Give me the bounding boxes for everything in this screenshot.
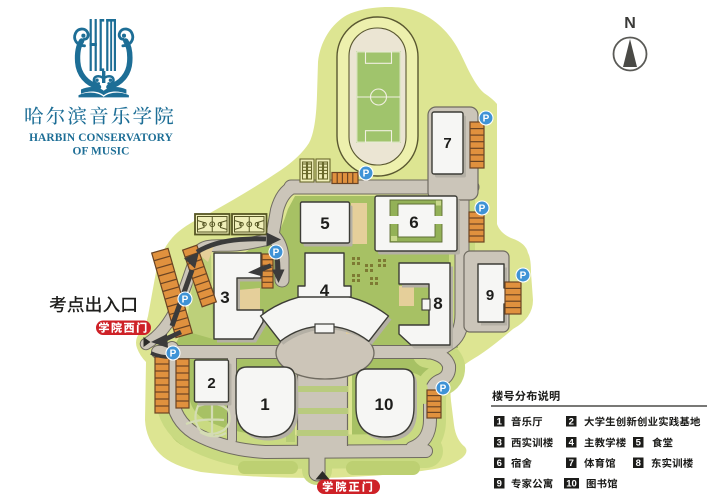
svg-text:5: 5 <box>320 214 329 233</box>
svg-text:HARBIN CONSERVATORY: HARBIN CONSERVATORY <box>29 132 173 144</box>
svg-text:9: 9 <box>486 287 494 304</box>
svg-text:P: P <box>273 247 280 258</box>
svg-text:6: 6 <box>497 458 502 469</box>
svg-text:4: 4 <box>569 438 575 449</box>
svg-text:10: 10 <box>566 479 577 490</box>
svg-text:9: 9 <box>497 479 502 490</box>
svg-text:P: P <box>170 348 177 359</box>
svg-text:P: P <box>520 270 527 281</box>
svg-text:P: P <box>363 168 370 179</box>
svg-text:P: P <box>483 113 490 124</box>
svg-text:P: P <box>479 203 486 214</box>
svg-text:3: 3 <box>497 438 502 449</box>
svg-text:1: 1 <box>260 395 269 414</box>
svg-text:2: 2 <box>569 417 574 428</box>
svg-text:3: 3 <box>220 288 229 307</box>
svg-text:7: 7 <box>443 135 451 152</box>
svg-text:4: 4 <box>320 281 330 300</box>
svg-text:8: 8 <box>433 294 442 313</box>
svg-text:OF MUSIC: OF MUSIC <box>72 146 129 158</box>
svg-text:2: 2 <box>207 375 215 392</box>
svg-text:P: P <box>182 294 189 305</box>
svg-text:8: 8 <box>636 458 641 469</box>
svg-text:P: P <box>440 383 447 394</box>
svg-text:7: 7 <box>569 458 574 469</box>
svg-text:1: 1 <box>497 417 503 428</box>
svg-text:5: 5 <box>636 438 642 449</box>
svg-text:6: 6 <box>409 213 418 232</box>
svg-text:N: N <box>624 15 636 32</box>
svg-text:10: 10 <box>375 395 394 414</box>
